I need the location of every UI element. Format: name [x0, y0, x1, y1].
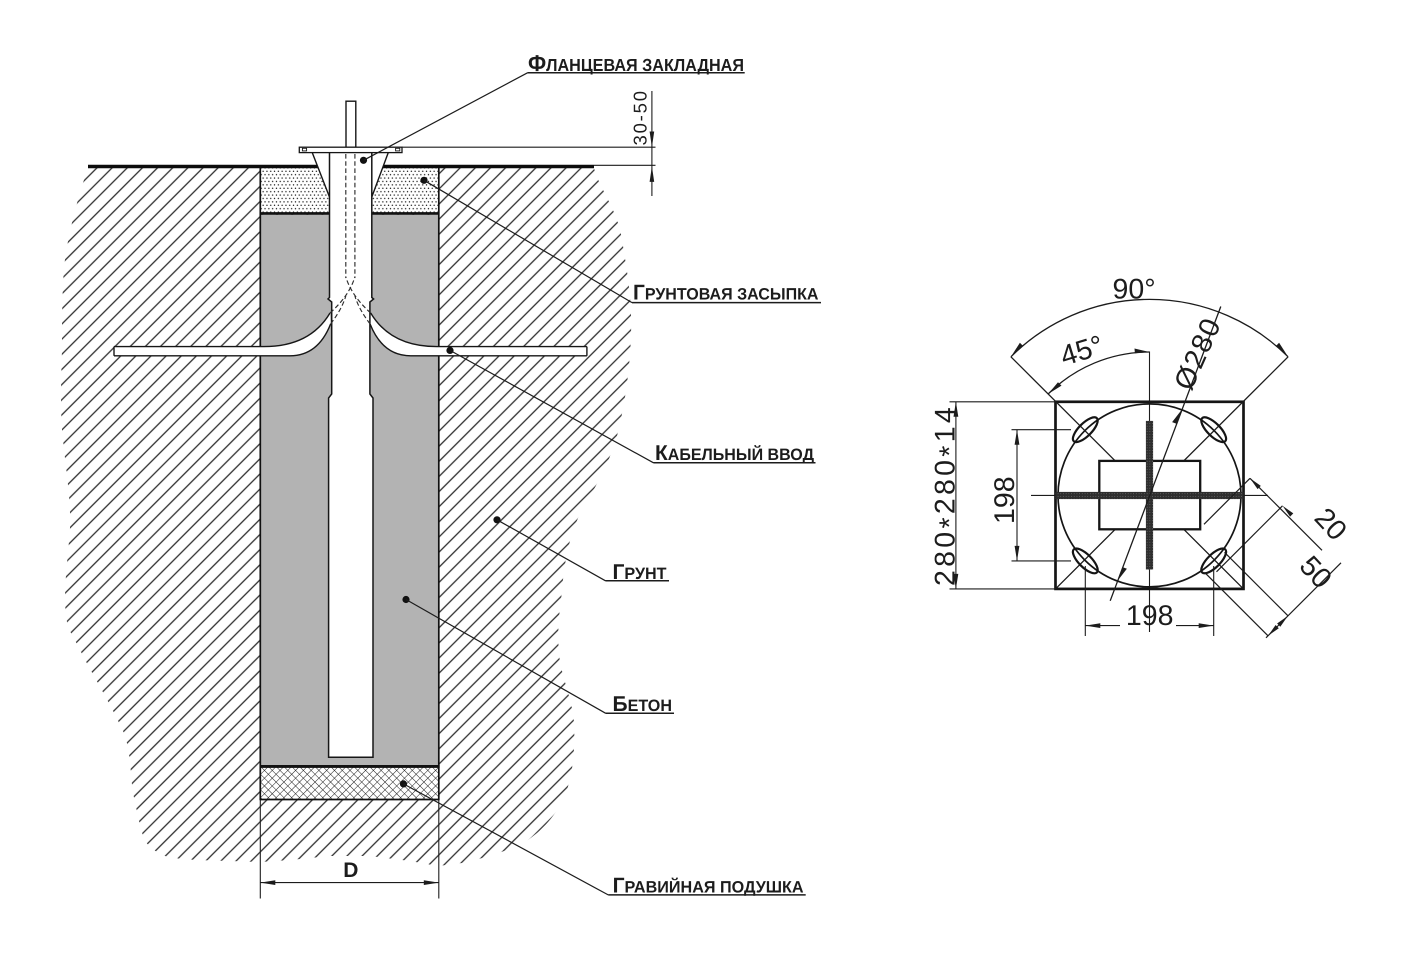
svg-text:ГРУНТ: ГРУНТ — [613, 560, 667, 584]
svg-text:ФЛАНЦЕВАЯ ЗАКЛАДНАЯ: ФЛАНЦЕВАЯ ЗАКЛАДНАЯ — [528, 50, 744, 76]
svg-text:50: 50 — [1293, 550, 1338, 595]
svg-text:198: 198 — [1126, 600, 1174, 632]
svg-text:90°: 90° — [1113, 274, 1156, 306]
svg-text:30-50: 30-50 — [630, 89, 651, 145]
svg-text:КАБЕЛЬНЫЙ ВВОД: КАБЕЛЬНЫЙ ВВОД — [655, 441, 814, 465]
svg-text:45°: 45° — [1057, 329, 1108, 372]
svg-text:ГРУНТОВАЯ ЗАСЫПКА: ГРУНТОВАЯ ЗАСЫПКА — [633, 281, 819, 305]
svg-text:198: 198 — [989, 476, 1021, 524]
svg-text:БЕТОН: БЕТОН — [613, 692, 673, 716]
svg-text:ГРАВИЙНАЯ ПОДУШКА: ГРАВИЙНАЯ ПОДУШКА — [613, 873, 804, 897]
svg-text:D: D — [343, 859, 358, 882]
svg-text:20: 20 — [1308, 502, 1353, 547]
svg-text:Ø280: Ø280 — [1168, 313, 1228, 395]
svg-text:280*280*14: 280*280*14 — [930, 404, 967, 586]
